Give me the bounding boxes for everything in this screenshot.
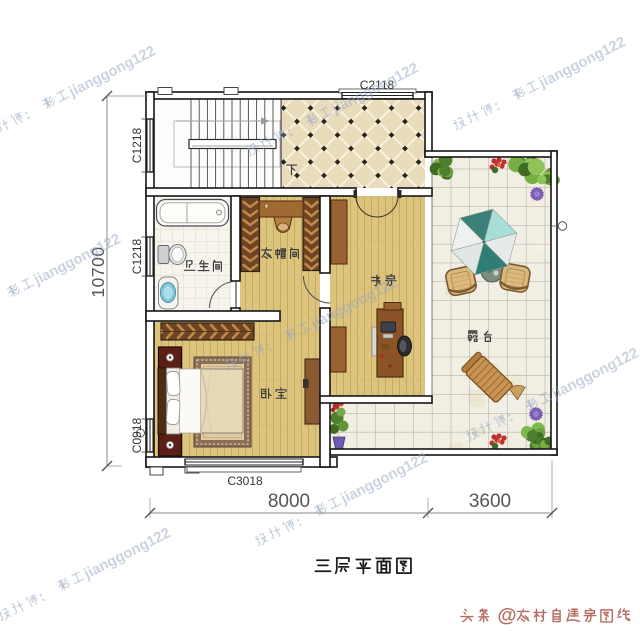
svg-text:C3018: C3018 bbox=[227, 474, 263, 488]
svg-text:C1218: C1218 bbox=[130, 128, 144, 164]
svg-text:C0918: C0918 bbox=[130, 418, 144, 454]
svg-text:@: @ bbox=[497, 604, 516, 626]
svg-text:8000: 8000 bbox=[268, 491, 310, 512]
svg-text:C1218: C1218 bbox=[130, 239, 144, 275]
svg-text:3600: 3600 bbox=[469, 491, 511, 512]
